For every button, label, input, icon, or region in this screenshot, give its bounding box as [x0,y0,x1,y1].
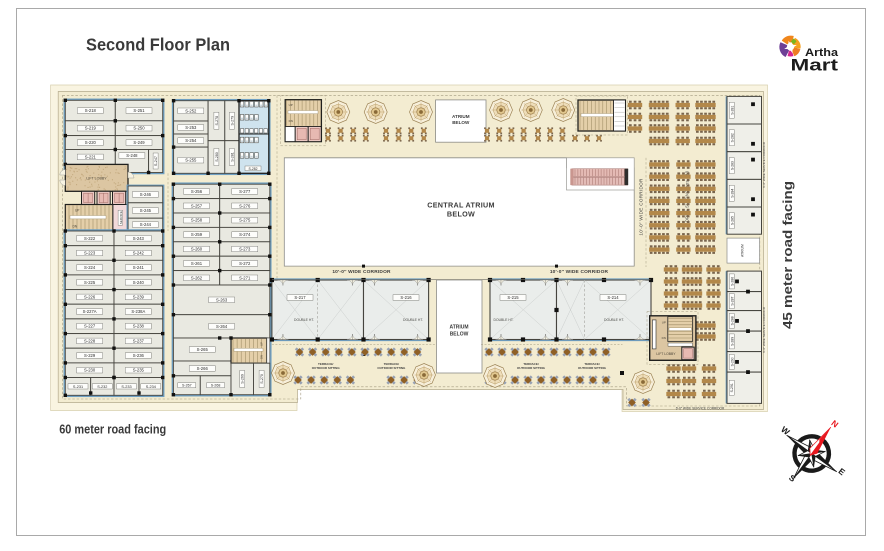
svg-text:S-222: S-222 [84,236,96,241]
svg-text:S-270: S-270 [260,374,264,384]
svg-text:S-241: S-241 [133,265,145,270]
svg-text:S-272: S-272 [239,261,251,266]
svg-text:S-281: S-281 [730,106,734,115]
svg-text:UP: UP [75,209,79,213]
svg-text:S-262: S-262 [191,275,203,280]
svg-text:S-223: S-223 [84,251,96,256]
svg-text:S-261: S-261 [191,261,203,266]
svg-text:S-254: S-254 [185,138,197,143]
svg-text:S-274: S-274 [239,232,251,237]
svg-text:S-233: S-233 [121,385,131,389]
svg-text:S-234: S-234 [146,385,156,389]
svg-text:S-267: S-267 [182,384,192,388]
svg-text:S-224: S-224 [84,265,96,270]
svg-text:BELOW: BELOW [450,332,469,338]
svg-text:S-243: S-243 [133,236,145,241]
svg-text:DOUBLE HT.: DOUBLE HT. [294,318,314,322]
svg-text:S-257: S-257 [191,203,203,208]
svg-text:S-217: S-217 [294,295,306,300]
svg-text:OUTDOOR SITTING: OUTDOOR SITTING [578,366,607,370]
svg-text:S-278: S-278 [215,116,219,126]
svg-text:S-258: S-258 [191,218,203,223]
svg-text:S-282: S-282 [248,167,257,171]
svg-text:S-263: S-263 [216,297,228,302]
svg-text:10′-0″ WIDE CORRIDOR: 10′-0″ WIDE CORRIDOR [332,269,391,275]
svg-text:10′-0″ WIDE CORRIDOR: 10′-0″ WIDE CORRIDOR [638,178,643,236]
svg-text:60 meter road facing: 60 meter road facing [59,422,166,436]
svg-text:S-228: S-228 [84,338,96,343]
svg-text:10′-0″ WIDE CORRIDOR: 10′-0″ WIDE CORRIDOR [550,269,609,275]
svg-text:ATRIUM: ATRIUM [740,244,744,257]
svg-text:S-229: S-229 [84,353,96,358]
svg-text:S-231: S-231 [73,385,83,389]
svg-text:S-290: S-290 [730,357,734,366]
svg-text:S-236: S-236 [133,353,145,358]
svg-text:LIFT LOBBY: LIFT LOBBY [656,352,676,356]
svg-text:S-235: S-235 [133,368,145,373]
svg-text:S-247: S-247 [154,156,158,166]
svg-text:S-226: S-226 [84,294,96,299]
svg-text:S-289: S-289 [730,337,734,346]
svg-text:S-287: S-287 [730,296,734,305]
svg-text:DN: DN [73,225,78,229]
svg-text:S-266: S-266 [197,366,209,371]
svg-text:S-227A: S-227A [83,309,97,314]
svg-text:S-276: S-276 [239,203,251,208]
svg-text:S-251: S-251 [133,108,145,113]
svg-text:OUTDOOR SITTING: OUTDOOR SITTING [517,366,546,370]
svg-text:S-281: S-281 [230,152,234,162]
svg-text:S-240: S-240 [133,280,145,285]
svg-text:S-283: S-283 [730,161,734,170]
svg-text:S-269: S-269 [241,374,245,384]
svg-text:S-238A: S-238A [131,309,145,314]
svg-text:S-230: S-230 [84,368,96,373]
svg-text:S-220: S-220 [85,140,97,145]
svg-text:45 meter road facing: 45 meter road facing [781,181,795,329]
svg-text:S-291: S-291 [730,383,734,392]
svg-text:ATRIUM: ATRIUM [449,325,468,331]
svg-text:OUTDOOR SITTING: OUTDOOR SITTING [377,366,406,370]
svg-text:ATRIUM: ATRIUM [452,114,470,119]
svg-text:S-285: S-285 [730,216,734,225]
svg-text:6′-6″ WIDE SERVICE CORRIDOR: 6′-6″ WIDE SERVICE CORRIDOR [676,406,725,410]
svg-text:DOUBLE HT.: DOUBLE HT. [403,318,423,322]
svg-text:Mart: Mart [791,56,839,75]
svg-text:S-273: S-273 [239,247,251,252]
svg-text:S-237: S-237 [133,338,145,343]
svg-text:S-286: S-286 [730,277,734,286]
svg-text:S-249: S-249 [133,140,145,145]
svg-text:S-275: S-275 [239,218,251,223]
svg-text:S-239: S-239 [133,294,145,299]
svg-text:S-280: S-280 [215,152,219,162]
svg-text:S-242: S-242 [133,251,145,256]
svg-text:6′-6″ WIDE SERVICE CORRIDOR: 6′-6″ WIDE SERVICE CORRIDOR [762,141,766,188]
svg-text:S-216: S-216 [400,295,412,300]
svg-text:S-232: S-232 [97,385,107,389]
svg-text:6′-6″ WIDE SERVICE CORRIDOR: 6′-6″ WIDE SERVICE CORRIDOR [762,306,766,353]
svg-text:S-264: S-264 [216,324,228,329]
svg-text:S-219: S-219 [85,126,97,131]
svg-text:OUTDOOR SITTING: OUTDOOR SITTING [312,366,341,370]
svg-text:BELOW: BELOW [447,210,475,219]
svg-text:UP: UP [289,103,293,107]
svg-text:DOUBLE HT.: DOUBLE HT. [494,318,514,322]
svg-text:S-252: S-252 [185,108,197,113]
svg-text:DN: DN [260,355,264,359]
svg-text:S-225: S-225 [84,280,96,285]
svg-text:S-268: S-268 [211,384,221,388]
svg-text:S-244: S-244 [140,222,152,227]
svg-text:DOUBLE HT.: DOUBLE HT. [604,318,624,322]
svg-text:S-259: S-259 [191,232,203,237]
svg-text:S-245: S-245 [140,208,152,213]
svg-text:S-227: S-227 [84,324,96,329]
svg-text:S-215: S-215 [507,295,519,300]
svg-text:S-253: S-253 [185,125,197,130]
svg-text:S-221: S-221 [85,154,97,159]
svg-text:S-288: S-288 [730,316,734,325]
svg-text:UP: UP [662,321,666,325]
svg-text:S-255: S-255 [185,158,197,163]
svg-text:S-250: S-250 [133,126,145,131]
svg-text:UP: UP [260,342,264,346]
svg-text:S-218: S-218 [85,108,97,113]
svg-text:S-248: S-248 [126,153,138,158]
svg-text:S-277: S-277 [239,189,251,194]
svg-text:S-271: S-271 [239,275,251,280]
svg-text:LIFT LOBBY: LIFT LOBBY [86,177,107,181]
svg-text:S-282: S-282 [730,133,734,142]
svg-text:S-214: S-214 [607,295,619,300]
svg-text:S-238: S-238 [133,324,145,329]
svg-text:SERVICE: SERVICE [119,211,123,224]
svg-text:CENTRAL ATRIUM: CENTRAL ATRIUM [427,201,495,210]
svg-text:S-256: S-256 [191,189,203,194]
svg-text:Second Floor Plan: Second Floor Plan [86,35,230,55]
svg-text:S-265: S-265 [197,347,209,352]
svg-text:S-260: S-260 [191,247,203,252]
svg-text:DN: DN [289,119,293,123]
svg-text:BELOW: BELOW [452,120,470,125]
svg-text:DN: DN [662,336,666,340]
svg-text:S-246: S-246 [140,192,152,197]
svg-text:S-279: S-279 [230,116,234,126]
svg-text:S-284: S-284 [730,189,734,198]
